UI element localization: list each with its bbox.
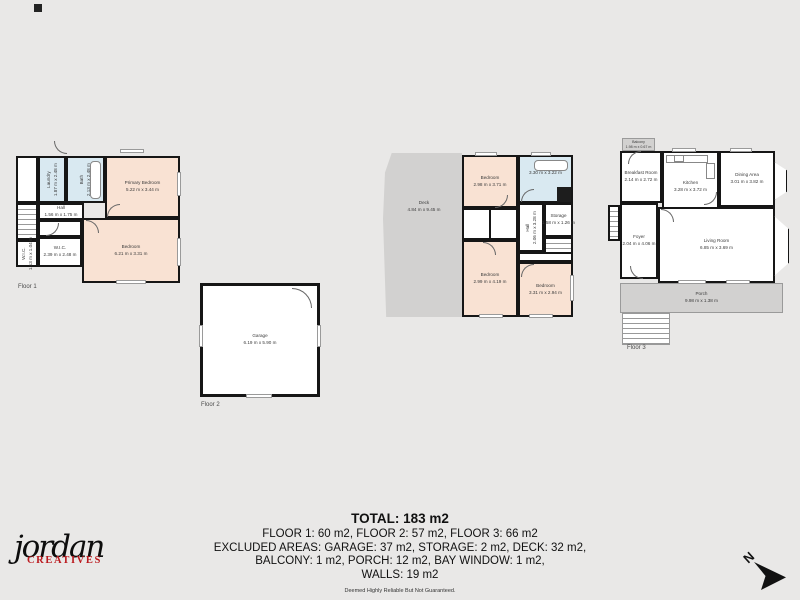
room-label: Bedroom 6.21 m x 3.31 m [115,244,148,257]
room-label: Hall 2.06 m x 3.28 m [524,211,537,244]
room-dims: 2.98 m x 3.71 m [474,182,507,189]
bathtub-icon [90,161,101,199]
room-dims: 1.87 m x 2.48 m [52,163,59,196]
window [317,325,321,347]
floorplan-floor-2: Garage 6.19 m x 5.90 m Floor 2 [200,283,320,397]
room-dims: 1.58 m x 1.26 m [542,220,575,227]
window [570,275,574,301]
window [177,172,181,196]
room-name: Bedroom [115,244,148,251]
room-label: Foyer 2.04 m x 4.06 m [623,234,656,247]
room-dims: 1.13 m x 1.04 m [27,237,34,270]
floor-caption: Floor 2 [201,402,220,408]
room-bedroom-1: Bedroom 2.98 m x 3.71 m [462,155,518,208]
room-dims: 3.28 m x 3.72 m [674,187,707,194]
room-name: Dining Area [731,172,764,179]
floorplan-floor-1: Laundry 1.87 m x 2.48 m Bath 2.13 m x 2.… [16,150,182,283]
room-corridor [38,220,82,237]
jordan-creatives-logo: jordan CREATIVES [14,532,124,566]
north-arrow: N [742,548,790,596]
north-arrow-icon [754,562,786,590]
room-dims: 2.06 m x 3.28 m [531,211,538,244]
window [672,148,696,152]
landing [518,252,573,262]
corner-mark [34,4,42,12]
room-label: Breakfast Room 2.14 m x 2.72 m [625,170,658,183]
floorplan-floor-2-upper: Deck 4.84 m x 9.45 m Bedroom 2.98 m x 3.… [383,145,573,317]
bay-window [774,216,789,276]
window [116,280,146,284]
room-name: Primary Bedroom [125,180,161,187]
window [120,149,144,153]
room-label: Hall 1.56 m x 1.75 m [45,205,78,218]
room-name: Hall [524,211,531,244]
room-name: Kitchen [674,180,707,187]
window [730,148,752,152]
room-dims: 3.31 m x 2.94 m [529,290,562,297]
window [529,314,553,318]
room-wic-small: W.I.C. 1.13 m x 1.04 m [16,240,38,267]
room-dims: 6.21 m x 3.31 m [115,251,148,258]
room-dims: 9.98 m x 1.38 m [685,298,718,305]
kitchen-counter [666,155,708,163]
chimney-box [557,187,571,202]
room-name: Bedroom [529,283,562,290]
room-living: Living Room 6.85 m x 3.69 m [658,207,775,283]
room-dims: 1.98 m x 0.67 m [626,145,652,149]
room-label: Bedroom 2.99 m x 4.19 m [474,272,507,285]
room-dims: 3.01 m x 3.82 m [731,179,764,186]
floorplan-sheet: { "colors": { "background": "#e9e8e7", "… [0,0,800,600]
closet-divider [489,210,491,238]
stairs [16,203,38,240]
room-label: Garage 6.19 m x 5.90 m [244,333,277,346]
area-summary: TOTAL: 183 m2 FLOOR 1: 60 m2, FLOOR 2: 5… [100,511,700,594]
room-porch: Porch 9.98 m x 1.38 m [620,283,783,313]
room-name: Breakfast Room [625,170,658,177]
window [531,152,551,156]
summary-total: TOTAL: 183 m2 [100,511,700,526]
entry-door-arc [54,141,67,154]
room-dims: 2.99 m x 4.19 m [474,279,507,286]
room-dims: 1.56 m x 1.75 m [45,212,78,219]
summary-floors: FLOOR 1: 60 m2, FLOOR 2: 57 m2, FLOOR 3:… [100,528,700,542]
room-breakfast: Breakfast Room 2.14 m x 2.72 m [620,151,662,203]
room-name: W.I.C. [44,245,77,252]
bay-window [774,162,787,200]
window [678,280,706,284]
room-hall: Hall 2.06 m x 3.28 m [518,203,544,252]
sink-icon [674,155,684,162]
room-name: W.I.C. [20,237,27,270]
room-name: Living Room [700,238,733,245]
stairs [608,205,620,241]
room-balcony: Balcony 1.98 m x 0.67 m [622,138,655,151]
room-name: Garage [244,333,277,340]
summary-walls: WALLS: 19 m2 [100,569,700,583]
room-label: Bedroom 2.98 m x 3.71 m [474,175,507,188]
floor-caption: Floor 3 [627,345,646,351]
room-label: W.I.C. 1.13 m x 1.04 m [20,237,33,270]
room-hall: Hall 1.56 m x 1.75 m [38,203,84,220]
room-label: Storage 1.58 m x 1.26 m [542,213,575,226]
room-name: Deck [393,200,455,207]
floor-caption: Floor 1 [18,284,37,290]
window [246,394,272,398]
room-wic: W.I.C. 2.39 m x 2.48 m [38,237,82,267]
room-bath: Bath 2.13 m x 2.48 m [66,156,105,203]
room-label: Living Room 6.85 m x 3.69 m [700,238,733,251]
room-label: Kitchen 3.28 m x 3.72 m [674,180,707,193]
room-label: Balcony 1.98 m x 0.67 m [626,140,652,149]
window [479,314,503,318]
room-dims: 2.04 m x 4.06 m [623,241,656,248]
room-dims: 6.85 m x 3.69 m [700,245,733,252]
room-dining: Dining Area 3.01 m x 3.82 m [719,151,775,207]
outdoor-stairs [622,313,670,345]
room-dims: 5.22 m x 3.44 m [125,187,161,194]
disclaimer: Deemed Highly Reliable But Not Guarantee… [100,588,700,594]
room-entry-closet [16,156,38,203]
window [199,325,203,347]
room-name: Laundry [45,163,52,196]
window [726,280,750,284]
room-label: Primary Bedroom 5.22 m x 3.44 m [125,180,161,193]
room-name: Hall [45,205,78,212]
room-dims: 4.84 m x 9.45 m [393,207,455,214]
room-label: Laundry 1.87 m x 2.48 m [45,163,58,196]
room-name: Bedroom [474,175,507,182]
bathtub-icon [534,160,568,171]
room-name: Porch [685,291,718,298]
north-label: N [740,549,757,566]
room-label: Deck 4.84 m x 9.45 m [393,200,455,213]
room-deck [383,153,462,317]
room-label: Porch 9.98 m x 1.38 m [685,291,718,304]
logo-subtitle: CREATIVES [27,555,124,566]
room-label: Dining Area 3.01 m x 3.82 m [731,172,764,185]
room-name: Foyer [623,234,656,241]
window [177,238,181,266]
floorplan-floor-3: Balcony 1.98 m x 0.67 m Breakfast Room 2… [608,138,794,352]
room-storage: Storage 1.58 m x 1.26 m [544,203,573,237]
room-label: Bedroom 3.31 m x 2.94 m [529,283,562,296]
stove-icon [706,163,715,179]
room-dims: 2.14 m x 2.72 m [625,177,658,184]
room-laundry: Laundry 1.87 m x 2.48 m [38,156,66,203]
summary-excluded-1: EXCLUDED AREAS: GARAGE: 37 m2, STORAGE: … [100,542,700,556]
room-name: Storage [542,213,575,220]
room-label: W.I.C. 2.39 m x 2.48 m [44,245,77,258]
summary-excluded-2: BALCONY: 1 m2, PORCH: 12 m2, BAY WINDOW:… [100,555,700,569]
room-dims: 2.39 m x 2.48 m [44,252,77,259]
room-name: Bedroom [474,272,507,279]
closets [462,208,518,240]
room-dims: 6.19 m x 5.90 m [244,340,277,347]
window [475,152,497,156]
